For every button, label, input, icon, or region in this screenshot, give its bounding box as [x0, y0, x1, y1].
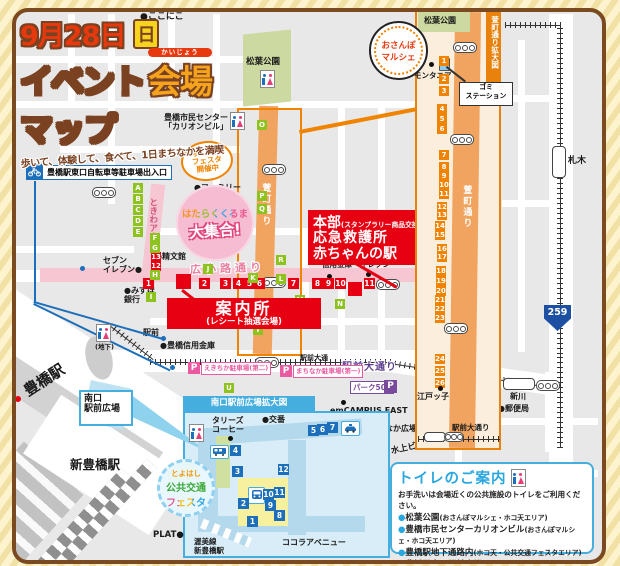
tram-stop-shinkawa-label: 新川: [510, 392, 526, 401]
label-toyohashi-shinkin: ●豊橋信用金庫: [160, 341, 215, 350]
toilet-item-name: 豊橋駅地下通路内: [405, 548, 473, 558]
stall-number: 2: [199, 278, 210, 289]
toilet-item: ●豊橋駅地下通路内(ホコ天・公共交通フェスタエリア): [398, 548, 586, 560]
toilet-icon: [189, 424, 204, 442]
stall-number: 8: [312, 278, 323, 289]
parking-machinaka-label: まちなか駐車場(第一): [293, 365, 363, 378]
tram-stop-panel: [424, 432, 446, 442]
annaijo-marker: [176, 274, 191, 289]
label-shin-toyohashi: 新豊橋駅: [70, 458, 120, 472]
panel-stall: 23: [435, 313, 445, 323]
traffic-light-icon: [450, 134, 474, 145]
tram-stop-sakugi: [552, 146, 566, 178]
stall-number: 3: [220, 278, 231, 289]
tram-line-top: [505, 22, 561, 28]
venue-letter: F: [150, 233, 160, 243]
honbu-sub: (スタンプラリー商品交換): [341, 221, 422, 229]
festa-line3: フェスタ: [166, 494, 206, 509]
toilet-guide-panel: トイレのご案内 お手洗いは会場近くの公共施設のトイレをご利用ください。 ●松葉公…: [390, 462, 594, 554]
panel-stall: 2: [439, 74, 449, 84]
parking-icon-park500: P: [384, 380, 397, 393]
label-post-office: ●郵便局: [498, 404, 529, 413]
venue-letter: Q: [257, 204, 267, 214]
p-letter: P: [191, 363, 198, 373]
gomi-callout: ゴミ ステーション: [459, 82, 513, 106]
bus-icon: [210, 445, 229, 459]
toilet-item-note: (おさんぽマルシェ・ホコ天エリア): [439, 514, 547, 522]
parking-icon: P: [280, 365, 292, 377]
annaijo-sub: (レシート抽選会場): [171, 318, 317, 327]
venue-letter: D: [133, 216, 143, 226]
taxi-icon: [341, 421, 360, 436]
toilet-item: ●豊橋駅南口駅前広場(公共交通フェスタエリア): [398, 560, 586, 564]
title-day: 日: [133, 19, 159, 49]
label-tullys: タリーズ コーヒー: [212, 416, 244, 434]
honbu-title: 本部: [313, 215, 341, 231]
stall-number: 4: [233, 278, 244, 289]
plaza-point: 10: [263, 489, 274, 500]
toilet-item-note: (公共交通フェスタエリア): [482, 561, 563, 564]
traffic-light-icon: [536, 380, 560, 391]
festa-line2: 公共交通: [166, 479, 206, 494]
stall-number: 11: [364, 278, 375, 289]
venue-letter: C: [133, 205, 143, 215]
venue-letter: U: [224, 383, 234, 393]
route-259-number: 259: [548, 307, 568, 318]
parking-ekichika-label: えきちか駐車場(第二): [201, 362, 271, 375]
title-date: 9月28日: [20, 21, 125, 52]
tram-stop-shinkawa: [503, 378, 535, 390]
panel-stall: 18: [436, 266, 446, 276]
label-atsumi-line: 渥美線 新豊橋駅: [194, 538, 224, 555]
hataraku-line2: 大集合!: [188, 218, 241, 243]
panel-stall: 15: [435, 230, 445, 240]
plaza-point: 7: [327, 422, 338, 433]
station-dot: [15, 396, 21, 402]
parking-icon: P: [188, 362, 200, 374]
title-map-word: マップ: [20, 110, 116, 149]
plaza-point: 8: [274, 510, 285, 521]
traffic-light-icon: [453, 42, 477, 53]
panel-road-label: 萱町通り: [461, 185, 471, 229]
annaijo-callout: 案内所 (レシート抽選会場): [167, 298, 321, 329]
panel-stall: 7: [439, 150, 449, 160]
traffic-light-icon: [92, 187, 116, 198]
panel-stall: 13: [437, 210, 447, 220]
plaza-point: 11: [274, 487, 285, 498]
toilet-icon: [511, 469, 526, 487]
venue-letter: A: [133, 183, 143, 193]
label-cocola: ココラアベニュー: [282, 538, 346, 547]
plaza-point: 2: [238, 498, 249, 509]
toilet-guide-title: トイレのご案内: [398, 467, 507, 488]
plaza-point: 12: [278, 464, 289, 475]
tram-stop-avenue-label: 駅前大通: [300, 354, 328, 362]
toilet-item: ●松葉公園(おさんぽマルシェ・ホコ天エリア): [398, 513, 586, 525]
stall-number: 10: [335, 278, 346, 289]
title-event: イベント: [20, 62, 144, 101]
plaza-point: 3: [232, 466, 243, 477]
stall-number: 7: [288, 278, 299, 289]
leader-dot: [80, 266, 85, 271]
venue-letter: N: [335, 299, 345, 309]
venue-letter: L: [276, 274, 286, 284]
venue-letter: J: [203, 264, 213, 274]
panel-stall: 17: [437, 252, 447, 262]
map-canvas: 札木 新川 駅前大通 駅前 259 駅前大通り P えきちか駐車場(第二) P …: [12, 8, 606, 564]
kotsu-festa-badge: とよはし 公共交通 フェスタ: [157, 459, 215, 517]
panel-stall: 1: [439, 56, 449, 66]
tram-stop-sakugi-label: 札木: [568, 156, 586, 166]
label-edokko: 江戸ッ子: [417, 392, 449, 401]
venue-letter: B: [133, 194, 143, 204]
plaza-point: 4: [230, 445, 241, 456]
label-plat: PLAT●: [153, 531, 184, 541]
panel-avenue-label: 駅前大通り: [452, 424, 490, 433]
toilet-item-note: (ホコ天・公共交通フェスタエリア): [473, 549, 581, 557]
toilet-item-name: 豊橋駅南口駅前広場: [405, 560, 482, 564]
p-letter: P: [387, 381, 394, 391]
plaza-title: 南口駅前広場拡大図: [211, 398, 288, 408]
gomi-text: ゴミ ステーション: [466, 83, 507, 100]
traffic-light-icon: [444, 432, 464, 442]
toilet-item-name: 豊橋市民センターカリオンビル: [405, 525, 524, 535]
osanpo-marche-badge: おさんぽ マルシェ: [369, 21, 428, 80]
panel-stall: 4: [437, 104, 447, 114]
title-kaijo: 会場: [148, 62, 212, 101]
panel-stall: 11: [439, 189, 449, 199]
tram-line-r259-south: [557, 354, 563, 448]
poster-title: 9月28日 日 イベントかいじょう会場 マップ 歩いて、体験して、食べて、1日ま…: [20, 14, 270, 170]
title-furigana: かいじょう: [148, 48, 212, 57]
label-koban: ●交番: [262, 415, 285, 424]
poi-dot: [429, 62, 434, 67]
toilet-guide-intro: お手洗いは会場近くの公共施設のトイレをご利用ください。: [398, 489, 586, 511]
event-map-poster: 札木 新川 駅前大通 駅前 259 駅前大通り P えきちか駐車場(第二) P …: [0, 0, 620, 566]
panel-stall: 19: [436, 276, 446, 286]
venue-letter: I: [146, 292, 156, 302]
venue-letter: K: [248, 273, 258, 283]
plaza-point: 9: [265, 500, 276, 511]
poi-dot: [341, 400, 346, 405]
panel-stall: 3: [439, 86, 449, 96]
toilet-item-name: 松葉公園: [405, 513, 439, 523]
poi-dot: [228, 436, 233, 441]
toilet-guide-list: ●松葉公園(おさんぽマルシェ・ホコ天エリア) ●豊橋市民センターカリオンビル(お…: [398, 513, 586, 564]
venue-letter: P: [257, 191, 267, 201]
toilet-item: ●豊橋市民センターカリオンビル(おさんぽマルシェ・ホコ天エリア): [398, 525, 586, 548]
tram-line-r259: [557, 24, 563, 354]
plaza-point: 1: [247, 516, 258, 527]
p-letter: P: [283, 366, 290, 376]
venue-letter: E: [133, 227, 143, 237]
leader-line: [34, 181, 36, 303]
label-chika: (地下): [95, 344, 114, 351]
venue-letter: R: [276, 255, 286, 265]
panel-tab-label: 萱町通り拡大図: [490, 16, 499, 69]
venue-letter: G: [150, 243, 160, 253]
traffic-light-icon: [444, 323, 468, 334]
leader-dot: [170, 365, 175, 370]
panel-stall: 25: [435, 366, 445, 376]
osanpo-deco: [374, 26, 423, 75]
panel-park-label: 松葉公園: [424, 16, 456, 25]
panel-stall: 5: [437, 114, 447, 124]
stall-number: 9: [323, 278, 334, 289]
toilet-icon-underground: [96, 324, 111, 342]
panel-stall: 24: [435, 354, 445, 364]
festa-line1: とよはし: [171, 468, 201, 479]
map-frame: 札木 新川 駅前大通 駅前 259 駅前大通り P えきちか駐車場(第二) P …: [12, 8, 606, 564]
venue-letter: H: [150, 270, 160, 280]
poi-dot: [438, 386, 443, 391]
hataraku-kuruma-badge: はたらくくるま 大集合!: [176, 185, 254, 261]
honbu-marker: [348, 282, 362, 296]
plaza-panel-header: 南口駅前広場拡大図: [183, 396, 315, 411]
label-seven-left: セブン イレブン●: [103, 256, 142, 274]
panel-stall: 6: [437, 124, 447, 134]
annaijo-title: 案内所: [171, 300, 317, 318]
plaza-bus-lane: [216, 436, 230, 488]
label-minamiguchi: 南口 駅前広場: [79, 390, 133, 426]
bullet: ●: [398, 560, 405, 564]
